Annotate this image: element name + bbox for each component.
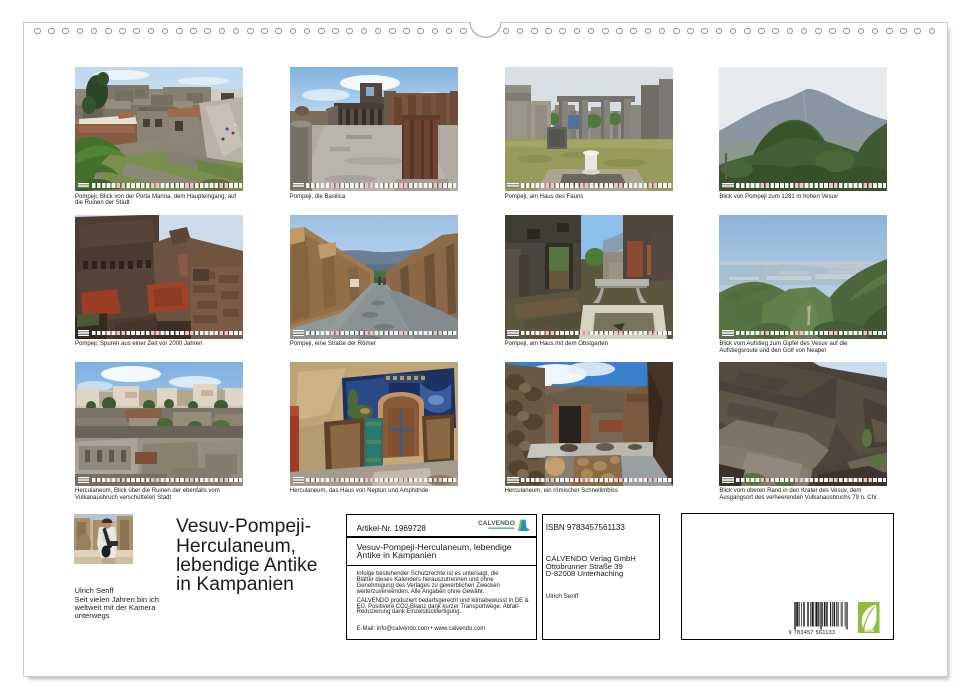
svg-text:CALVENDO: CALVENDO <box>478 520 515 527</box>
svg-text:eco: eco <box>864 628 874 633</box>
